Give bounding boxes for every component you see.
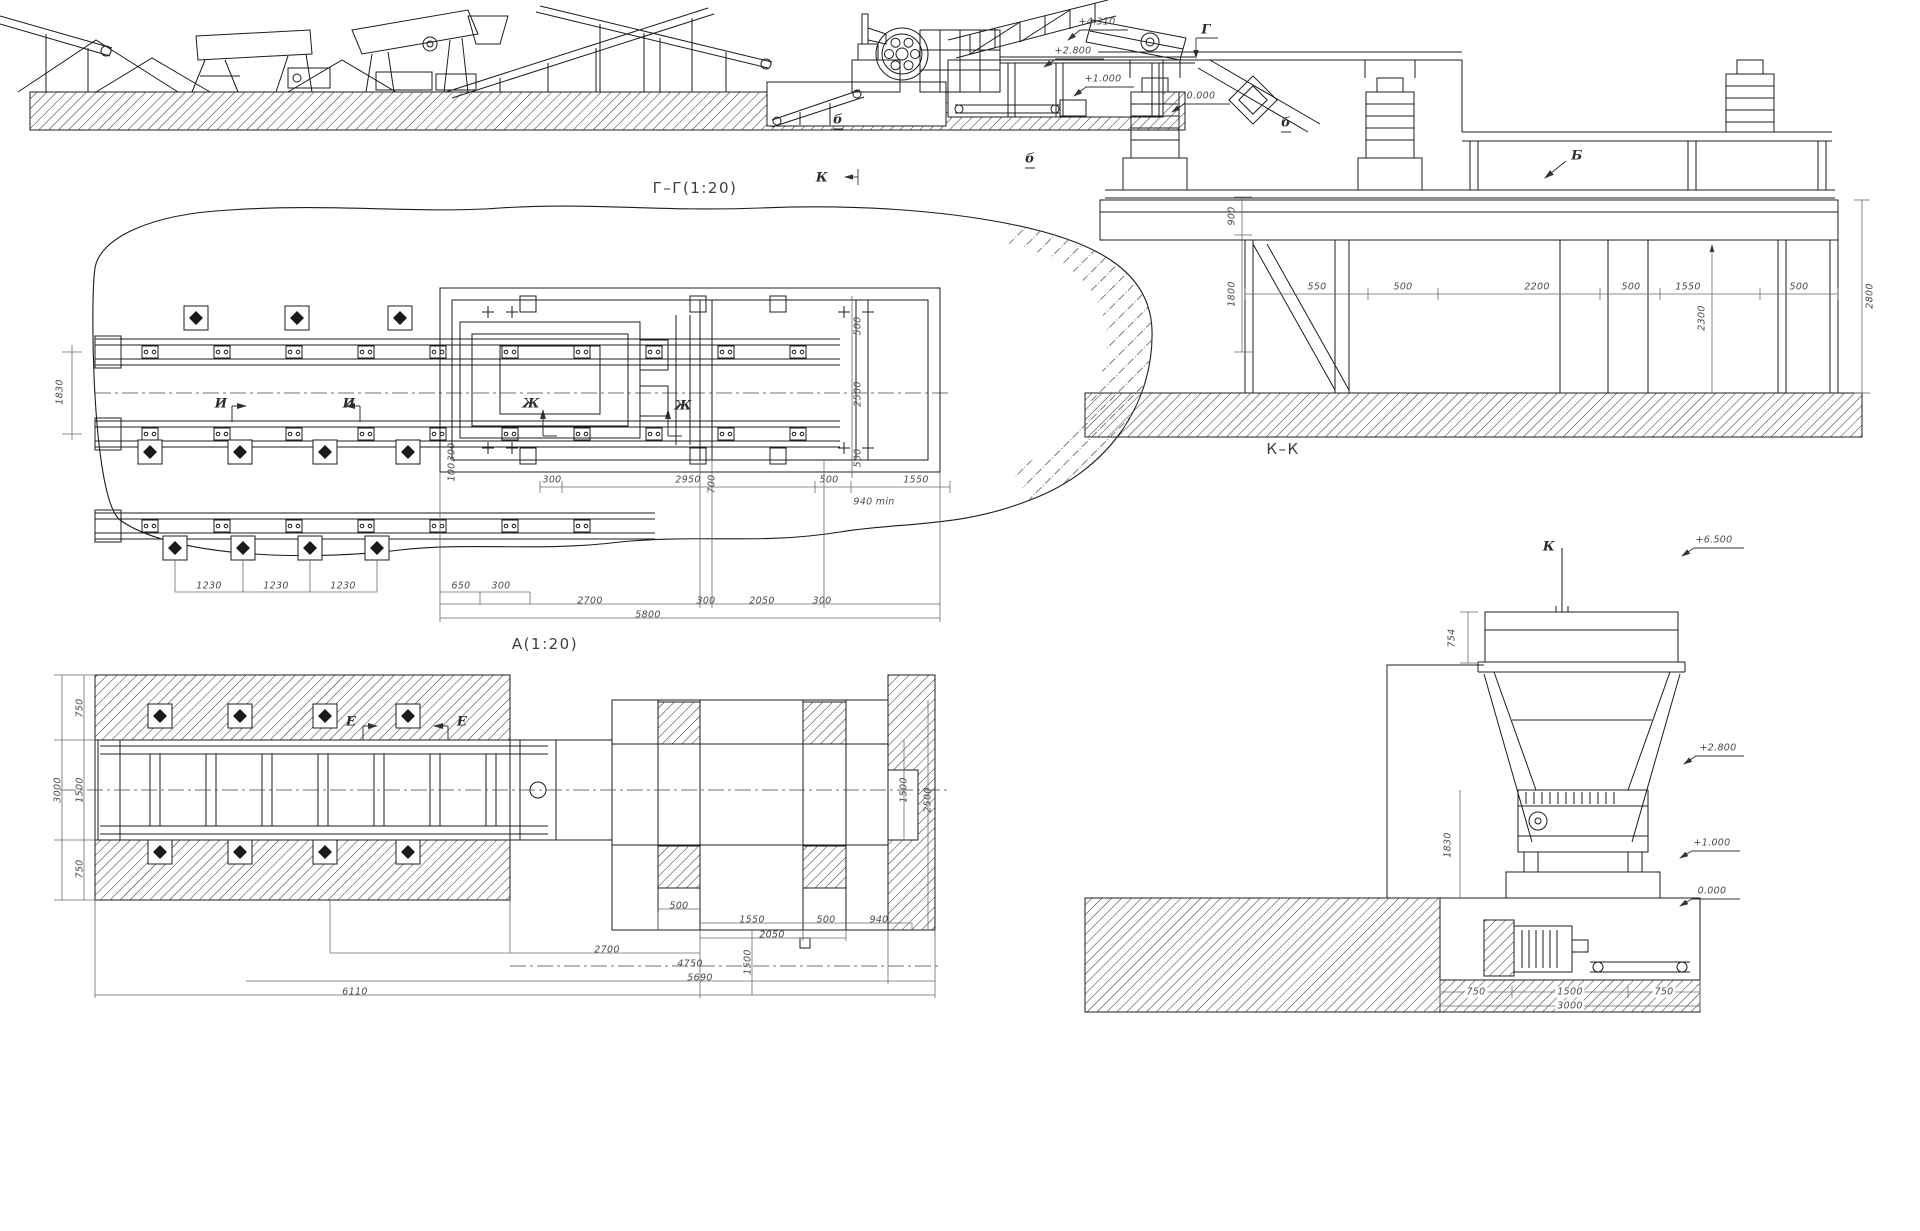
drawing-linework <box>0 0 1920 1231</box>
elevation-right-linework <box>1085 548 1744 1012</box>
section-gg-linework <box>0 0 1230 185</box>
section-kk-linework <box>1085 52 1870 437</box>
plan-a-linework <box>62 206 1152 622</box>
drawing-canvas: Г–Г(1:20)А(1:20)К–К+4.310+2.800+1.0000.0… <box>0 0 1920 1231</box>
plan-bottom-linework <box>54 675 950 998</box>
